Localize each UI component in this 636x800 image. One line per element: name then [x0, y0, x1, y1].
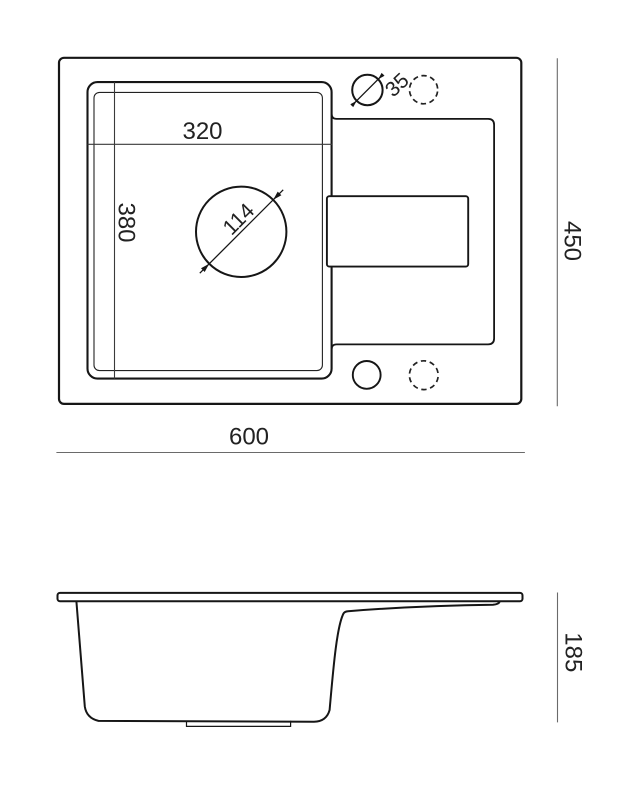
svg-text:450: 450	[559, 221, 586, 261]
svg-text:320: 320	[182, 118, 222, 145]
svg-text:380: 380	[113, 202, 140, 242]
svg-text:185: 185	[560, 632, 587, 672]
svg-text:600: 600	[229, 423, 269, 450]
